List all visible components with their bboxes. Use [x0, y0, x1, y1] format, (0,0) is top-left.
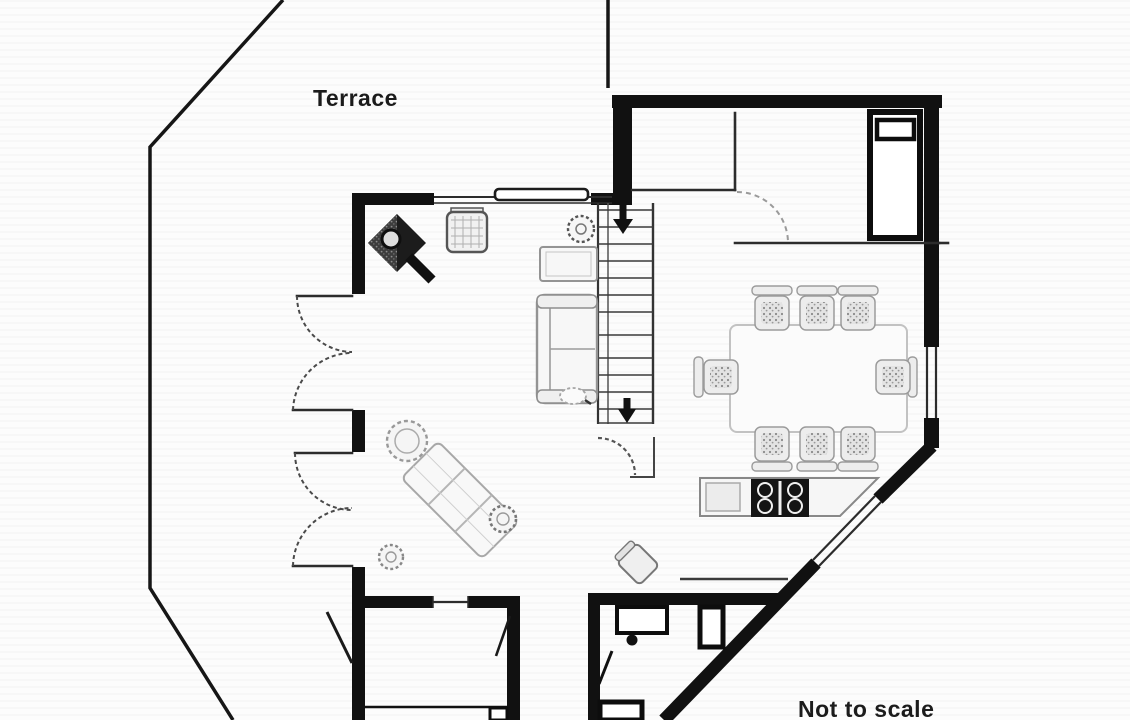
- dining-chair: [694, 357, 738, 397]
- dining-chair: [876, 357, 917, 397]
- dining-chair: [797, 427, 837, 471]
- kitchen-sink: [706, 483, 740, 511]
- door-swing-arc: [293, 508, 352, 566]
- diagonal-wall-upper: [878, 446, 932, 499]
- stair-bottom-door: [598, 437, 654, 477]
- wicker-chair: [447, 208, 487, 252]
- west-wall-upper: [352, 193, 365, 294]
- dining-chair: [838, 286, 878, 330]
- bathroom: [599, 607, 723, 720]
- east-wall-upper: [924, 95, 939, 347]
- west-wall-mid-stub: [352, 410, 365, 452]
- bedroom-door-swing-arc: [737, 192, 788, 243]
- plant: [568, 216, 594, 242]
- staircase: [598, 203, 654, 477]
- washbasin: [617, 607, 667, 633]
- stair-treads: [598, 210, 653, 423]
- store-room-east-wall: [507, 596, 520, 720]
- terrace-label: Terrace: [313, 85, 398, 111]
- stair-down-arrow-bottom: [618, 398, 636, 423]
- terrace-edge-line: [150, 0, 283, 720]
- toilet-unit: [700, 607, 723, 647]
- stool: [379, 545, 403, 569]
- stair-down-arrow-top: [613, 204, 633, 234]
- door-swing-arc: [293, 353, 352, 410]
- desk-chair: [613, 539, 660, 586]
- dining-chair: [752, 427, 792, 471]
- store-room-door-leaf-left: [327, 612, 352, 663]
- store-room-window: [433, 596, 468, 608]
- dining-chair: [838, 427, 878, 471]
- floor-plan-drawing: Terrace Not to scale: [0, 0, 1130, 720]
- living-room: [368, 208, 597, 569]
- bathroom-north-wall: [588, 593, 782, 605]
- terrace-french-doors: [293, 296, 352, 566]
- scale-note-label: Not to scale: [798, 696, 934, 720]
- west-wall-lower-stub: [352, 567, 365, 597]
- bedroom-north-wall: [612, 95, 942, 108]
- north-window: [434, 189, 612, 203]
- bathroom-door-leaf: [599, 651, 612, 684]
- door-swing-arc: [297, 296, 352, 352]
- store-room-west-wall: [352, 596, 365, 720]
- shower-cubicle: [600, 702, 642, 720]
- diagonal-wall-lower: [664, 563, 816, 720]
- dining-chair: [797, 286, 837, 330]
- sofa: [537, 295, 597, 403]
- store-room-fixture: [490, 708, 507, 720]
- bed-pillow: [877, 120, 914, 139]
- kitchen: [613, 478, 878, 585]
- door-swing-arc: [295, 453, 352, 510]
- wood-stove: [368, 214, 436, 284]
- bedroom: [870, 112, 920, 238]
- dining-area: [694, 286, 917, 471]
- landing-west-wall: [613, 104, 632, 205]
- kitchen-cooktop: [751, 479, 809, 517]
- lounger: [387, 421, 519, 559]
- east-window: [927, 347, 936, 418]
- dining-chair: [752, 286, 792, 330]
- washbasin-tap: [627, 635, 638, 646]
- stool-2: [490, 506, 516, 532]
- floor-plan: Terrace Not to scale: [0, 0, 1130, 720]
